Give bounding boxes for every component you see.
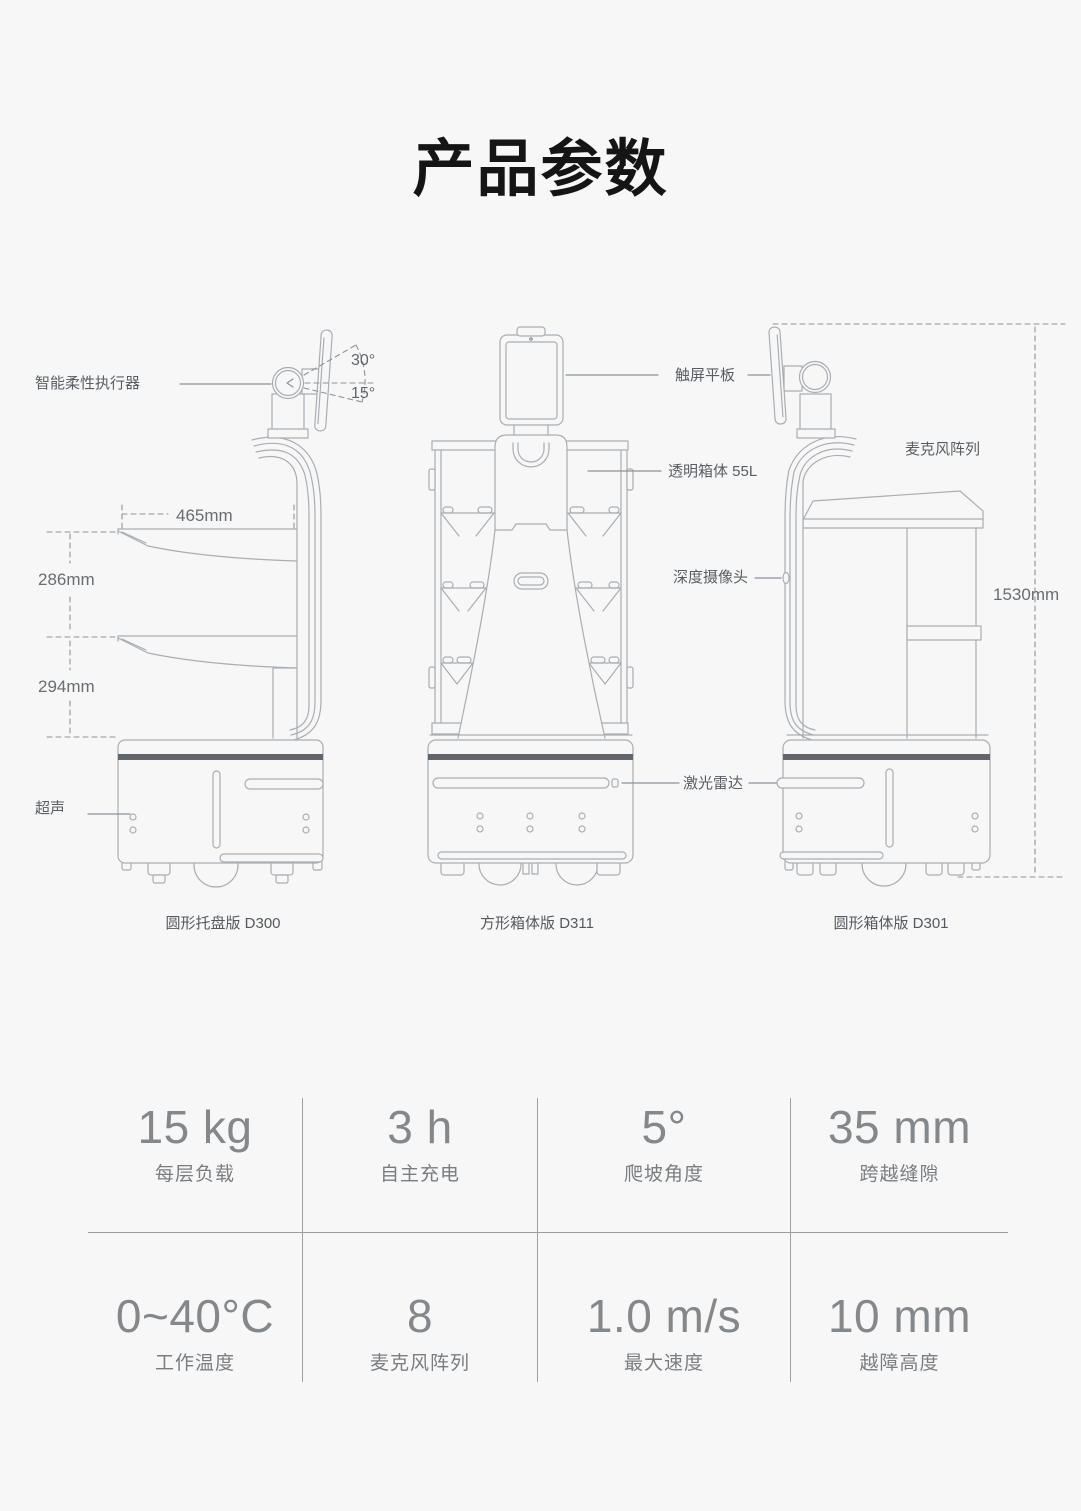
spec-value: 10 mm xyxy=(828,1289,971,1343)
spec-value: 8 xyxy=(407,1289,433,1343)
label-angle-up: 30° xyxy=(351,351,375,371)
spec-label: 越障高度 xyxy=(859,1352,939,1376)
caption-d301: 圆形箱体版 D301 xyxy=(781,912,1001,933)
label-tablet: 触屏平板 xyxy=(675,366,735,386)
caption-d300: 圆形托盘版 D300 xyxy=(113,912,333,933)
spec-cell-charging: 3 h 自主充电 xyxy=(303,1098,538,1233)
spec-value: 35 mm xyxy=(828,1100,971,1154)
label-mic-array: 麦克风阵列 xyxy=(905,440,980,460)
spec-cell-temperature: 0~40°C 工作温度 xyxy=(88,1233,303,1382)
label-depth-camera: 深度摄像头 xyxy=(673,568,748,588)
label-transparent-box: 透明箱体 55L xyxy=(668,462,757,482)
spec-grid: 15 kg 每层负载 3 h 自主充电 5° 爬坡角度 35 mm 跨越缝隙 0… xyxy=(88,1098,1008,1382)
spec-label: 麦克风阵列 xyxy=(370,1352,470,1376)
spec-label: 爬坡角度 xyxy=(624,1163,704,1187)
label-ultrasound: 超声 xyxy=(35,799,65,819)
spec-cell-load: 15 kg 每层负载 xyxy=(88,1098,303,1233)
product-spec-page: 产品参数 xyxy=(0,0,1081,1511)
spec-value: 5° xyxy=(642,1100,687,1154)
spec-value: 0~40°C xyxy=(116,1289,274,1343)
label-actuator: 智能柔性执行器 xyxy=(35,374,140,394)
spec-cell-gap-crossing: 35 mm 跨越缝隙 xyxy=(791,1098,1008,1233)
spec-label: 每层负载 xyxy=(155,1163,235,1187)
label-angle-down: 15° xyxy=(351,384,375,404)
spec-value: 15 kg xyxy=(137,1100,252,1154)
spec-cell-obstacle-height: 10 mm 越障高度 xyxy=(791,1233,1008,1382)
label-lidar: 激光雷达 xyxy=(683,774,743,794)
dim-tray-gap-lower: 294mm xyxy=(38,676,95,698)
dim-tray-gap-upper: 286mm xyxy=(38,569,95,591)
spec-value: 3 h xyxy=(387,1100,452,1154)
dim-tray-width: 465mm xyxy=(176,505,233,527)
caption-d311: 方形箱体版 D311 xyxy=(427,912,647,933)
robot-d300-drawing xyxy=(47,330,374,887)
spec-cell-max-speed: 1.0 m/s 最大速度 xyxy=(538,1233,791,1382)
spec-cell-climb-angle: 5° 爬坡角度 xyxy=(538,1098,791,1233)
spec-label: 自主充电 xyxy=(380,1163,460,1187)
spec-label: 最大速度 xyxy=(624,1352,704,1376)
dim-total-height: 1530mm xyxy=(993,584,1059,606)
robot-d311-drawing xyxy=(428,327,633,885)
spec-value: 1.0 m/s xyxy=(587,1289,741,1343)
spec-cell-mic-array: 8 麦克风阵列 xyxy=(303,1233,538,1382)
spec-label: 跨越缝隙 xyxy=(859,1163,939,1187)
spec-label: 工作温度 xyxy=(155,1352,235,1376)
